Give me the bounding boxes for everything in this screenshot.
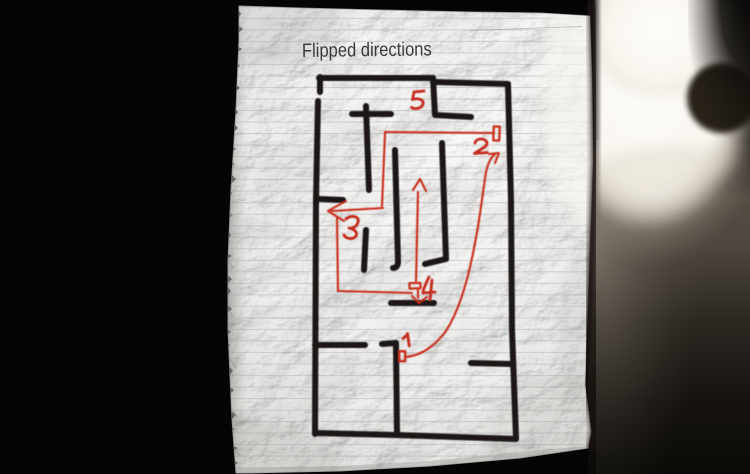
svg-text:Date: Date (507, 13, 520, 19)
svg-text:Flipped directions: Flipped directions (302, 38, 432, 61)
